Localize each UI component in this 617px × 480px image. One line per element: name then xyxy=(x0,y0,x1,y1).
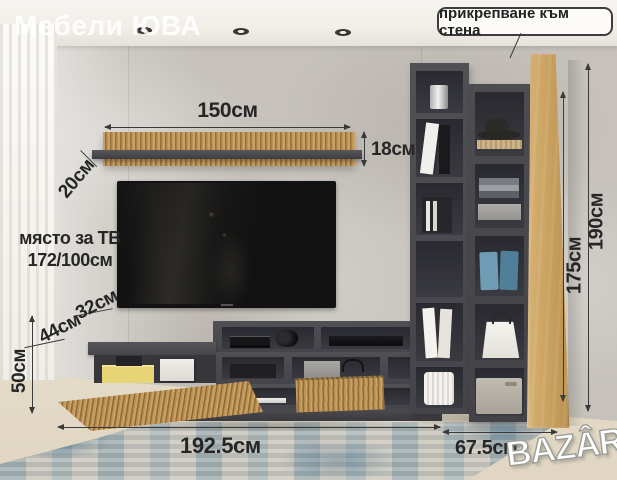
product-photo: 150см 18см 20см място за ТВ 172/100см 32… xyxy=(0,0,617,480)
shelf-cell xyxy=(475,164,524,228)
dimension-line-base-width xyxy=(58,427,440,428)
dimension-label: 192.5см xyxy=(180,433,261,459)
dimension-label: 50см xyxy=(9,343,31,399)
stand-compartment xyxy=(321,327,413,349)
tv-stand-upper-tier xyxy=(213,321,442,352)
wall-shelf-slat-panel xyxy=(103,132,355,166)
wall-shelf-board xyxy=(92,150,362,159)
stand-compartment xyxy=(222,327,314,349)
white-book xyxy=(438,309,453,359)
tv xyxy=(117,181,336,308)
shelf-cell xyxy=(475,92,524,156)
drawer-box-handle xyxy=(505,382,517,386)
bookcase-column-left xyxy=(410,63,469,414)
shelf-cell xyxy=(416,119,463,177)
book-spine xyxy=(433,201,437,231)
ceiling-spotlight xyxy=(233,28,249,35)
speaker xyxy=(230,364,276,378)
media-player xyxy=(329,336,403,346)
ceiling-spotlight xyxy=(335,29,351,36)
tv-space-line1: място за ТВ xyxy=(10,227,130,249)
shelf-cell xyxy=(416,183,463,235)
folded-clothes xyxy=(479,191,519,198)
tv-stand-left-top xyxy=(88,342,216,355)
small-black-box xyxy=(116,356,142,366)
wall-mount-callout: прикрепване към стена xyxy=(437,7,613,36)
shelf-cell xyxy=(475,304,524,360)
hat-brim xyxy=(478,130,520,140)
tv-brand-mark xyxy=(221,304,233,306)
shelf-cell xyxy=(475,368,524,416)
book-spine xyxy=(426,201,430,231)
dimension-line-shelf-height xyxy=(364,132,365,166)
yellow-box xyxy=(102,365,154,383)
bag-handle xyxy=(342,359,364,372)
blue-bag xyxy=(479,252,498,291)
woven-tray xyxy=(477,140,522,149)
dimension-label: 18см xyxy=(371,139,415,161)
gray-bag xyxy=(304,361,340,378)
media-boxes xyxy=(230,336,270,348)
cylinder-basket xyxy=(424,372,454,405)
shelf-cell xyxy=(416,367,463,408)
white-book xyxy=(422,308,437,359)
bookcase-column-right xyxy=(469,84,530,422)
blue-bag xyxy=(499,251,518,291)
stand-compartment xyxy=(222,357,284,379)
shopping-bag-handle xyxy=(492,312,511,324)
store-watermark: Мебели ЮВА xyxy=(14,10,201,42)
shelf-cell xyxy=(416,71,463,113)
dimension-line-shelf-width xyxy=(105,127,350,128)
black-book xyxy=(439,125,450,174)
headphones xyxy=(276,330,298,347)
tv-space-label: място за ТВ 172/100см xyxy=(10,227,130,271)
tv-space-line2: 172/100см xyxy=(10,249,130,271)
tv-stand-left-shelf xyxy=(94,355,216,383)
drawer-front xyxy=(295,375,384,412)
white-book xyxy=(420,122,439,174)
dimension-label: 175см xyxy=(564,234,587,298)
dimension-line-base-height xyxy=(32,316,33,413)
storage-box xyxy=(478,204,521,220)
dimension-label: 150см xyxy=(185,99,270,123)
canister xyxy=(430,85,448,109)
shelf-cell xyxy=(475,236,524,296)
tv-screen-reflection xyxy=(119,183,334,304)
shelf-cell xyxy=(416,303,463,361)
folded-clothes xyxy=(479,178,519,185)
dimension-label: 190см xyxy=(586,190,609,254)
shelf-cell xyxy=(416,241,463,297)
white-box xyxy=(160,359,194,381)
